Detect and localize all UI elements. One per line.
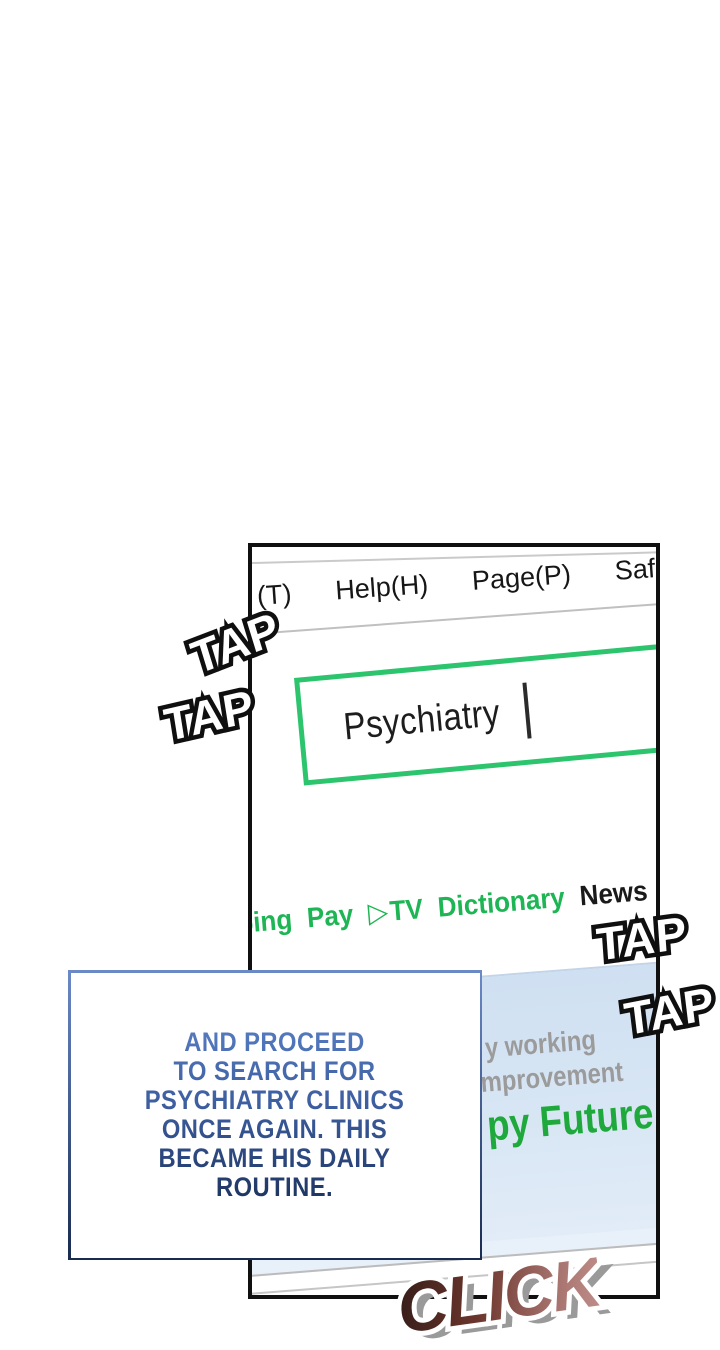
nav-link-tv[interactable]: ▷TV	[367, 892, 425, 929]
narration-line: ONCE AGAIN. THIS	[145, 1115, 405, 1144]
nav-link-dictionary[interactable]: Dictionary	[437, 882, 567, 924]
narration-line: PSYCHIATRY CLINICS	[145, 1086, 405, 1115]
narration-box: AND PROCEED TO SEARCH FOR PSYCHIATRY CLI…	[68, 970, 482, 1260]
nav-link-shopping[interactable]: ping	[248, 904, 293, 940]
nav-link-pay[interactable]: Pay	[306, 899, 355, 935]
sfx-tap-fill: TAP	[185, 601, 286, 686]
menu-item-help[interactable]: Help(H)	[334, 569, 429, 606]
menu-item-page[interactable]: Page(P)	[471, 559, 572, 597]
narration-line: ROUTINE.	[145, 1173, 405, 1202]
narration-text: AND PROCEED TO SEARCH FOR PSYCHIATRY CLI…	[145, 1028, 405, 1202]
narration-line: AND PROCEED	[145, 1028, 405, 1057]
comic-page: (T) Help(H) Page(P) Safe Psychiatry ping…	[0, 0, 720, 1350]
narration-line: TO SEARCH FOR	[145, 1057, 405, 1086]
sfx-tap-fill: TAP	[595, 905, 689, 972]
sfx-tap-fill: TAP	[160, 678, 258, 752]
menu-item-safety[interactable]: Safe	[614, 552, 660, 587]
narration-line: BECAME HIS DAILY	[145, 1144, 405, 1173]
narration-box-inner: AND PROCEED TO SEARCH FOR PSYCHIATRY CLI…	[71, 973, 480, 1258]
nav-link-news[interactable]: News	[578, 875, 648, 912]
banner-headline: py Future	[485, 1090, 655, 1152]
sfx-tap-3: TAP TAP	[593, 903, 712, 988]
text-cursor	[523, 683, 532, 739]
play-icon: ▷	[367, 895, 390, 930]
nav-link-tv-label: TV	[389, 893, 425, 927]
search-input[interactable]: Psychiatry	[294, 635, 660, 786]
portal-nav-links: ping Pay ▷TV Dictionary News	[248, 874, 649, 940]
search-query-text: Psychiatry	[342, 692, 502, 749]
